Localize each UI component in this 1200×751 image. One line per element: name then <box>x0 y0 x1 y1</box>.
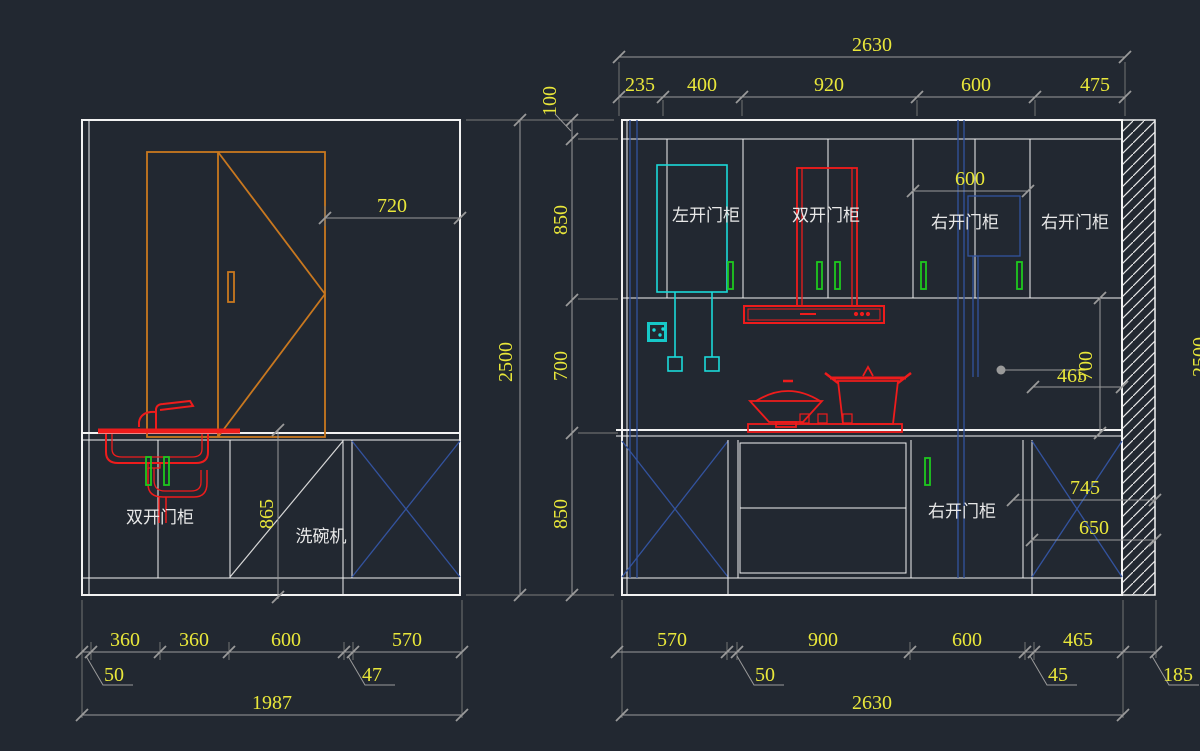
cad-canvas[interactable]: 双开门柜 洗碗机 720 865 360 360 600 570 50 47 1… <box>0 0 1200 751</box>
dim-235: 235 <box>625 74 655 96</box>
label-right-door-cabinet-2: 右开门柜 <box>1041 213 1109 232</box>
label-double-door-cabinet: 双开门柜 <box>792 206 860 225</box>
dim-600b: 600 <box>952 629 982 651</box>
label-dishwasher: 洗碗机 <box>296 527 347 546</box>
dim-700-right: 700 <box>1075 351 1097 381</box>
dim-850-lower: 850 <box>550 499 572 529</box>
dim-360a: 360 <box>110 629 140 651</box>
leader-50: 50 <box>104 664 124 686</box>
dim-700: 700 <box>550 351 572 381</box>
dim-2630-top: 2630 <box>852 34 892 56</box>
dim-2500: 2500 <box>495 342 517 382</box>
wall-section-hatch <box>1122 120 1155 595</box>
dim-850-upper: 850 <box>550 205 572 235</box>
dim-600: 600 <box>271 629 301 651</box>
leader-185r: 185 <box>1163 664 1193 686</box>
dim-920: 920 <box>814 74 844 96</box>
leader-50r: 50 <box>755 664 775 686</box>
dim-2500-right: 2500 <box>1189 337 1200 377</box>
dim-900: 900 <box>808 629 838 651</box>
label-right-door-cabinet-1: 右开门柜 <box>931 213 999 232</box>
power-socket <box>647 322 667 342</box>
dim-465b: 465 <box>1063 629 1093 651</box>
dim-600-top: 600 <box>961 74 991 96</box>
dim-745: 745 <box>1070 477 1100 499</box>
dim-400: 400 <box>687 74 717 96</box>
dim-570r: 570 <box>657 629 687 651</box>
dim-865: 865 <box>256 499 278 529</box>
label-right-door-base-cabinet: 右开门柜 <box>928 502 996 521</box>
dim-2630-bottom: 2630 <box>852 692 892 714</box>
dim-475: 475 <box>1080 74 1110 96</box>
label-sink-cabinet: 双开门柜 <box>126 508 194 527</box>
dim-600-inner: 600 <box>955 168 985 190</box>
dim-100: 100 <box>539 86 561 116</box>
leader-45r: 45 <box>1048 664 1068 686</box>
dim-650: 650 <box>1079 517 1109 539</box>
dim-1987: 1987 <box>252 692 292 714</box>
leader-47: 47 <box>362 664 382 686</box>
dim-720: 720 <box>377 195 407 217</box>
dim-360b: 360 <box>179 629 209 651</box>
label-left-door-cabinet: 左开门柜 <box>672 206 740 225</box>
dim-570: 570 <box>392 629 422 651</box>
